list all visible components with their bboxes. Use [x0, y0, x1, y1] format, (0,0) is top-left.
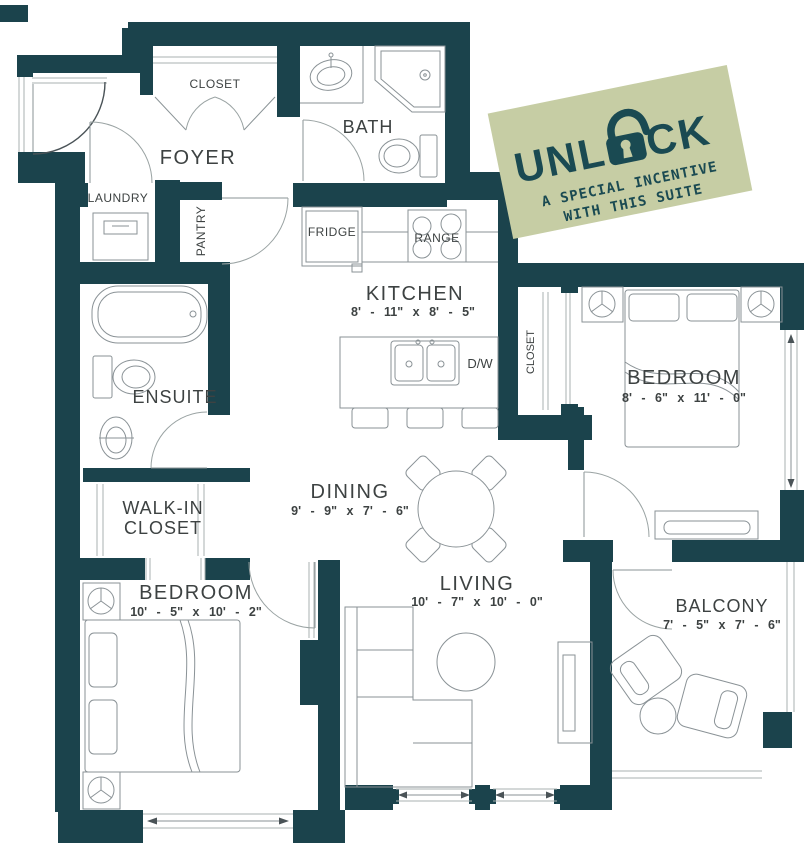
- dining-label: DINING: [311, 481, 390, 503]
- bedroom-main-door: [584, 472, 649, 537]
- bath-toilet: [379, 135, 437, 177]
- foyer-closet-doors: [155, 97, 275, 130]
- dining-table: [404, 454, 508, 564]
- dishwasher-label: D/W: [467, 356, 493, 371]
- bedroom-second-dims: 10' - 5" x 10' - 2": [130, 605, 262, 619]
- bar-stools: [352, 408, 498, 428]
- fridge-label: FRIDGE: [308, 225, 356, 239]
- foyer-closet-label: CLOSET: [189, 77, 240, 91]
- entry-door: [33, 82, 105, 154]
- closet-sliding-door: [566, 293, 570, 404]
- balcony-dims: 7' - 5" x 7' - 6": [663, 618, 781, 632]
- dining-dims: 9' - 9" x 7' - 6": [291, 504, 409, 518]
- range-label: RANGE: [414, 231, 459, 245]
- promo-badge[interactable]: UNL CK A SPECIAL INCENTIVE WITH THIS SUI…: [488, 65, 753, 239]
- bedroom-second-sidelight: [309, 562, 314, 638]
- sectional-sofa: [345, 607, 472, 787]
- bedroom-main-dims: 8' - 6" x 11' - 0": [622, 391, 746, 405]
- pantry-label: PANTRY: [194, 206, 208, 257]
- tv-console: [558, 642, 592, 743]
- bedroom-second-label: BEDROOM: [139, 582, 253, 604]
- ensuite-label: ENSUITE: [132, 387, 217, 407]
- living-label: LIVING: [440, 573, 515, 595]
- shower: [375, 46, 445, 112]
- living-dims: 10' - 7" x 10' - 0": [411, 595, 543, 609]
- bedroom-main-window: [785, 330, 797, 490]
- kitchen-island: [340, 337, 498, 408]
- ensuite-sink: [99, 417, 134, 459]
- walk-in-label-line1: WALK-IN: [122, 498, 203, 518]
- kitchen-dims: 8' - 11" x 8' - 5": [351, 305, 475, 319]
- floor-plan: CLOSET FOYER BATH LAUNDRY PANTRY FRIDGE …: [0, 0, 804, 844]
- bedroom-second-window: [143, 814, 293, 828]
- living-window-left: [396, 789, 472, 801]
- bath-vanity-sink: [300, 46, 363, 103]
- ensuite-door: [151, 412, 207, 468]
- washer-dryer: [93, 213, 148, 260]
- laundry-door: [90, 122, 152, 183]
- fridge-box: [302, 207, 362, 272]
- walk-in-opening-jambs: [146, 558, 205, 580]
- floor-plan-page: CLOSET FOYER BATH LAUNDRY PANTRY FRIDGE …: [0, 0, 804, 844]
- living-window-right: [493, 789, 557, 801]
- kitchen-label: KITCHEN: [366, 283, 464, 305]
- pantry-door: [222, 198, 288, 264]
- laundry-label: LAUNDRY: [88, 191, 149, 205]
- bedroom-closet-rod: [543, 292, 548, 410]
- balcony-furniture: [607, 631, 749, 740]
- balcony-label: BALCONY: [675, 596, 768, 616]
- entry-sidelight-window: [19, 77, 107, 152]
- bedroom-main-label: BEDROOM: [627, 367, 741, 389]
- bedroom-closet-label: CLOSET: [525, 330, 537, 374]
- bedroom-main-dresser: [655, 511, 758, 539]
- bath-label: BATH: [343, 117, 394, 137]
- foyer-closet-shelf: [153, 57, 277, 63]
- coffee-table: [437, 633, 495, 691]
- ensuite-tub: [92, 286, 207, 343]
- walk-in-label-line2: CLOSET: [124, 518, 202, 538]
- foyer-label: FOYER: [160, 147, 236, 169]
